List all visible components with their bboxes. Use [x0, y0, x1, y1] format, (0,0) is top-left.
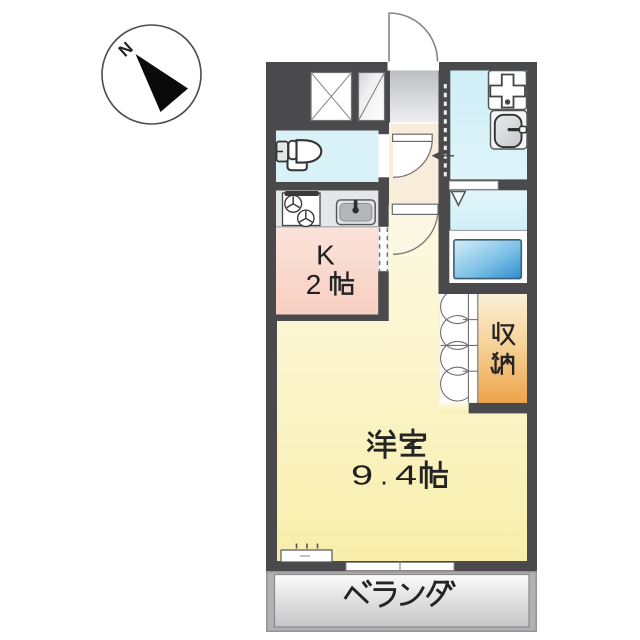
svg-text:2: 2: [306, 269, 322, 300]
svg-text:K: K: [316, 240, 335, 271]
svg-text:.: .: [380, 460, 388, 491]
svg-text:4: 4: [395, 460, 417, 491]
svg-text:9: 9: [351, 460, 373, 491]
